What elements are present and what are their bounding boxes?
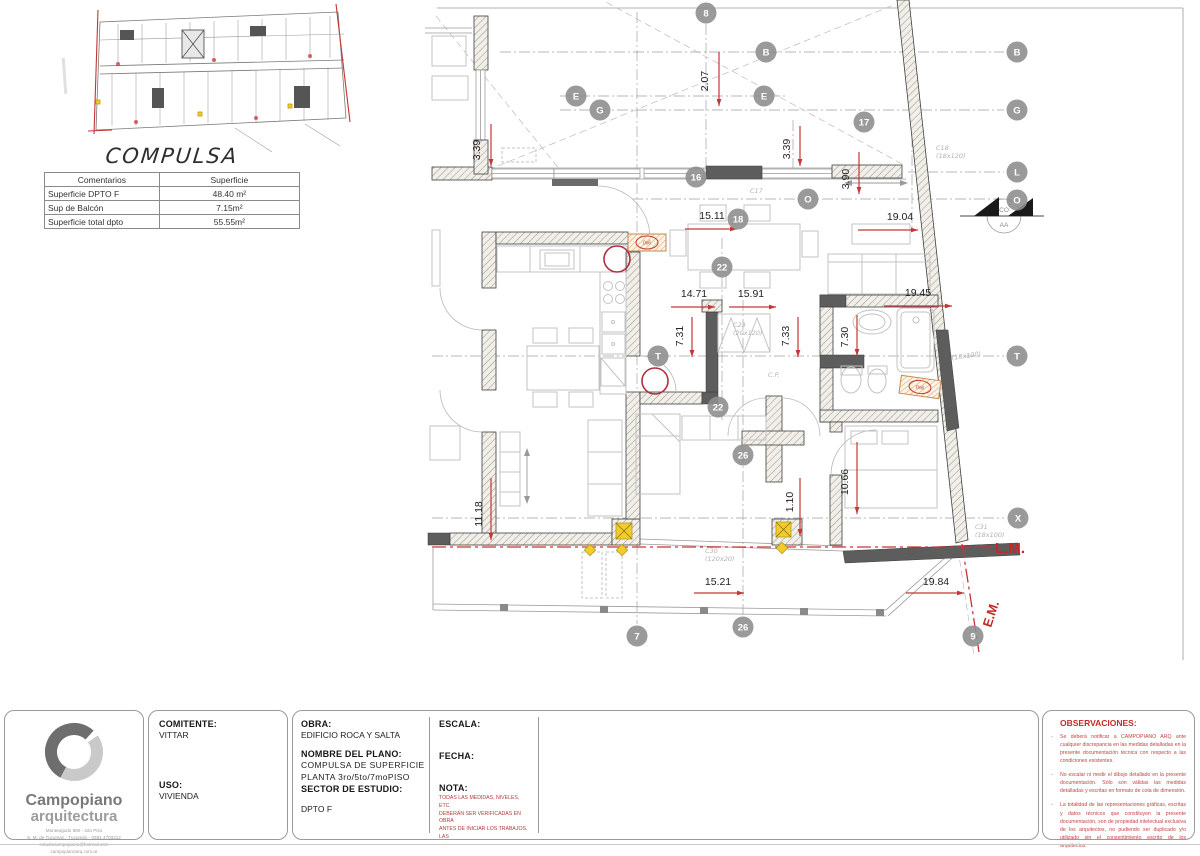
- sector-value: DPTO F: [301, 804, 427, 814]
- obra-value: EDIFICIO ROCA Y SALTA: [301, 730, 427, 740]
- table-header-row: ComentariosSuperficie: [45, 173, 300, 187]
- svg-text:19.84: 19.84: [923, 576, 949, 588]
- grid-bubble-18: 18: [728, 209, 749, 230]
- logo-ring: [39, 719, 109, 785]
- grid-bubble-E: E: [754, 86, 775, 107]
- observations-list: Se deberá notificar a CAMPOPIANO ARQ ant…: [1060, 733, 1186, 850]
- studio-address: Monteagudo 890 - 2do PisoS. M. de Tucumá…: [5, 828, 143, 856]
- svg-text:G: G: [596, 105, 603, 116]
- grid-bubble-26: 26: [733, 617, 754, 638]
- svg-text:O: O: [1013, 195, 1020, 206]
- sheet-bottom-edge: [0, 844, 1200, 845]
- grid-bubble-22: 22: [712, 257, 733, 278]
- plan-label: C30: [705, 547, 718, 555]
- svg-text:17: 17: [859, 117, 870, 128]
- svg-text:22: 22: [717, 262, 728, 273]
- grid-bubble-16: 16: [686, 167, 707, 188]
- grid-bubble-L: L: [1007, 162, 1028, 183]
- dimension: 19.04: [858, 211, 918, 232]
- table-row: Sup de Balcón7.15m²: [45, 201, 300, 215]
- svg-text:15.91: 15.91: [738, 288, 764, 300]
- grid-bubble-9: 9: [963, 626, 984, 647]
- uso-label: USO:: [159, 780, 277, 790]
- grid-bubble-X: X: [1008, 508, 1029, 529]
- uso-value: VIVIENDA: [159, 791, 277, 801]
- plan-label: C17: [750, 187, 764, 195]
- dimension: 3.39: [781, 126, 802, 166]
- svg-text:15.11: 15.11: [699, 210, 725, 222]
- grid-bubble-17: 17: [854, 112, 875, 133]
- plan-label: E.M.: [980, 599, 1003, 629]
- superficie-table: ComentariosSuperficie Superficie DPTO F4…: [44, 172, 300, 229]
- svg-text:E: E: [761, 91, 767, 102]
- plano-label: NOMBRE DEL PLANO:: [301, 749, 427, 759]
- plan-label: (18x120): [936, 152, 966, 160]
- grid-bubble-T: T: [1007, 346, 1028, 367]
- svg-text:G: G: [1013, 105, 1020, 116]
- logo-box: Campopiano arquitectura Monteagudo 890 -…: [4, 710, 144, 840]
- svg-text:14.71: 14.71: [681, 288, 707, 300]
- comitente-label: COMITENTE:: [159, 719, 277, 729]
- svg-text:AA: AA: [1000, 222, 1009, 229]
- orange-column-marker: 0x6: [628, 234, 666, 251]
- svg-text:B: B: [763, 47, 770, 58]
- section-marker: CO AA: [960, 197, 1044, 233]
- svg-text:CO: CO: [999, 207, 1009, 214]
- compulsa-block: COMPULSA ComentariosSuperficie Superfici…: [44, 144, 300, 229]
- svg-text:X: X: [1015, 513, 1022, 524]
- svg-text:O: O: [804, 194, 811, 205]
- observation-item: La totalidad de las representaciones grá…: [1060, 801, 1186, 849]
- divider: [429, 717, 430, 833]
- svg-text:E: E: [573, 91, 579, 102]
- plano-value-line1: COMPULSA DE SUPERFICIE: [301, 760, 427, 771]
- observation-item: Se deberá notificar a CAMPOPIANO ARQ ant…: [1060, 733, 1186, 765]
- escala-label: ESCALA:: [439, 719, 531, 729]
- svg-text:11.18: 11.18: [473, 501, 485, 527]
- dimension: 2.07: [699, 52, 721, 106]
- sheet-frame: [437, 8, 1183, 660]
- client-box: COMITENTE: VITTAR USO: VIVIENDA: [148, 710, 288, 840]
- observation-item: No escalar ni medir el dibujo detallado …: [1060, 771, 1186, 795]
- svg-text:7.31: 7.31: [674, 326, 686, 347]
- divider: [538, 717, 539, 833]
- svg-text:1.10: 1.10: [784, 492, 796, 513]
- plan-label: C.P.: [768, 371, 780, 379]
- svg-text:T: T: [655, 351, 661, 362]
- plan-label: (120x20): [705, 555, 735, 563]
- svg-text:T: T: [1014, 351, 1020, 362]
- dimension: 19.84: [906, 576, 964, 595]
- svg-text:19.45: 19.45: [905, 287, 931, 299]
- svg-text:B: B: [1014, 47, 1021, 58]
- svg-text:3.90: 3.90: [840, 169, 852, 190]
- plan-label: L.M.: [995, 540, 1025, 557]
- grid-bubble-G: G: [590, 100, 611, 121]
- plan-label: C23: [733, 321, 746, 329]
- svg-text:7.30: 7.30: [839, 327, 851, 348]
- svg-text:2.07: 2.07: [699, 71, 711, 92]
- svg-text:0x6: 0x6: [915, 384, 924, 391]
- compulsa-title: COMPULSA: [43, 144, 302, 168]
- grid-bubble-7: 7: [627, 626, 648, 647]
- dimension: 7.33: [780, 317, 800, 357]
- plan-label: (18x100): [975, 531, 1005, 539]
- nota-text: TODAS LAS MEDIDAS, NIVELES, ETC.DEBERÁN …: [439, 795, 531, 842]
- dimension: 15.91: [729, 288, 776, 309]
- svg-text:L: L: [1014, 167, 1020, 178]
- table-row: Superficie DPTO F48.40 m²: [45, 187, 300, 201]
- grid-bubble-B: B: [756, 42, 777, 63]
- plan-label: (18x100): [951, 350, 981, 362]
- grid-bubble-O: O: [798, 189, 819, 210]
- dimension: 7.31: [674, 317, 694, 357]
- table-header: Comentarios: [45, 173, 160, 187]
- comitente-value: VITTAR: [159, 730, 277, 740]
- svg-text:10.66: 10.66: [839, 469, 851, 495]
- window: [492, 169, 832, 178]
- plan-label: (20x120): [733, 329, 763, 337]
- grid-bubble-G: G: [1007, 100, 1028, 121]
- dimension: 15.21: [694, 576, 744, 595]
- svg-text:0x6: 0x6: [643, 241, 651, 247]
- svg-text:26: 26: [738, 450, 749, 461]
- svg-text:22: 22: [713, 402, 724, 413]
- observations-box: OBSERVACIONES: Se deberá notificar a CAM…: [1042, 710, 1195, 840]
- svg-text:8: 8: [703, 8, 708, 19]
- grid-bubble-8: 8: [696, 3, 717, 24]
- main-title-box: OBRA: EDIFICIO ROCA Y SALTA NOMBRE DEL P…: [292, 710, 1039, 840]
- drawing-sheet: { "compulsa": { "title": "COMPULSA", "ta…: [0, 0, 1200, 848]
- fecha-label: FECHA:: [439, 751, 531, 761]
- plano-value-line2: PLANTA 3ro/5to/7moPISO: [301, 772, 427, 783]
- svg-text:7: 7: [634, 631, 639, 642]
- observations-label: OBSERVACIONES:: [1060, 718, 1186, 728]
- svg-text:19.04: 19.04: [887, 211, 913, 223]
- furniture: [430, 36, 937, 516]
- grid-bubble-O: O: [1007, 190, 1028, 211]
- grid-bubble-22: 22: [708, 397, 729, 418]
- svg-text:15.21: 15.21: [705, 576, 731, 588]
- svg-text:26: 26: [738, 622, 749, 633]
- table-header: Superficie: [159, 173, 299, 187]
- svg-text:3.39: 3.39: [471, 140, 483, 161]
- svg-text:18: 18: [733, 214, 744, 225]
- obra-label: OBRA:: [301, 719, 427, 729]
- nota-label: NOTA:: [439, 783, 531, 793]
- svg-text:3.39: 3.39: [781, 139, 793, 160]
- grid-bubble-T: T: [648, 346, 669, 367]
- overview-mini-plan: [62, 4, 350, 152]
- svg-text:7.33: 7.33: [780, 326, 792, 347]
- grid-bubble-E: E: [566, 86, 587, 107]
- grid-bubble-26: 26: [733, 445, 754, 466]
- svg-text:16: 16: [691, 172, 702, 183]
- grid-bubble-B: B: [1007, 42, 1028, 63]
- svg-text:9: 9: [970, 631, 975, 642]
- plan-label: C31: [975, 523, 988, 531]
- plan-label: C18: [936, 144, 949, 152]
- table-row: Superficie total dpto55.55m²: [45, 215, 300, 229]
- red-circle-marker: [642, 368, 668, 394]
- dimension: 7.30: [839, 315, 859, 356]
- orange-column-marker: 0x6: [899, 375, 941, 398]
- sector-label: SECTOR DE ESTUDIO:: [301, 784, 427, 794]
- dimension: 14.71: [671, 288, 715, 309]
- floor-plan: 0x6 0x6 CO AA C18(18x120)C17C23(20x: [0, 0, 1200, 706]
- studio-subname: arquitectura: [5, 808, 143, 825]
